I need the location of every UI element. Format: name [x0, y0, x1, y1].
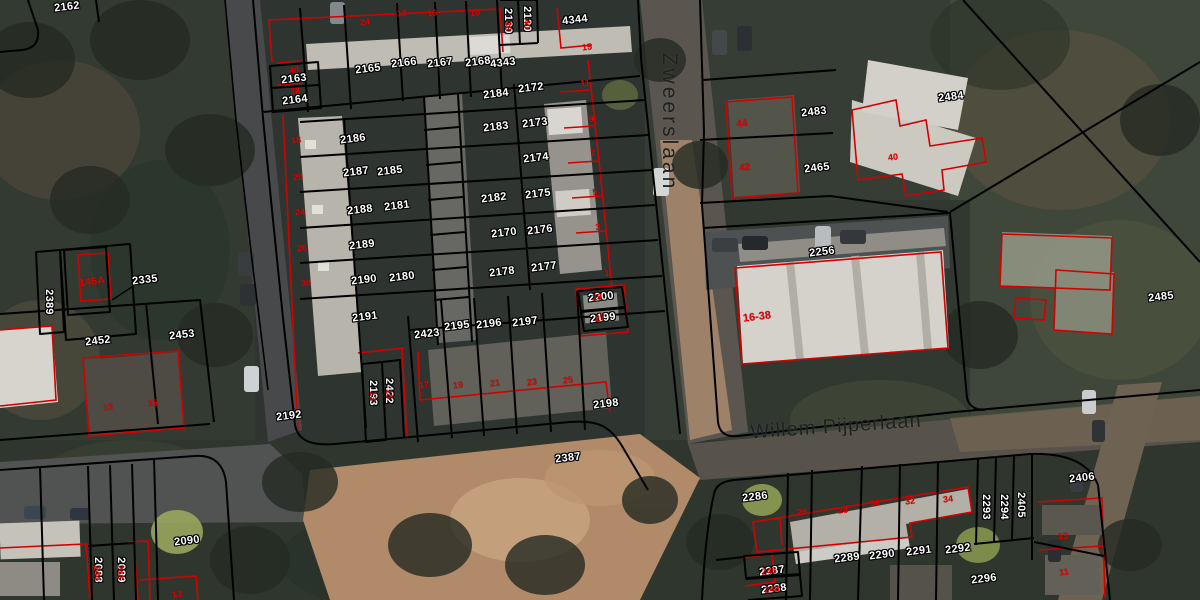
house-number-244: 244	[92, 565, 102, 580]
parcel-label-2406: 2406	[1069, 470, 1096, 485]
house-number-15: 15	[384, 389, 394, 399]
house-number-16: 16	[426, 7, 437, 18]
house-number-9: 9	[588, 114, 594, 125]
house-number-248: 248	[764, 583, 780, 595]
parcel-label-2172: 2172	[518, 80, 545, 95]
house-number-10: 10	[469, 7, 480, 18]
house-number-24: 24	[294, 206, 305, 217]
parcel-label-2177: 2177	[531, 259, 558, 274]
parcel-label-2256: 2256	[809, 244, 836, 259]
house-number-23: 23	[526, 376, 537, 387]
house-number-38: 38	[503, 21, 513, 31]
house-number-13: 13	[368, 391, 378, 401]
parcel-label-2192: 2192	[276, 408, 303, 423]
parcel-label-2452: 2452	[85, 333, 112, 348]
parcel-label-2178: 2178	[489, 264, 516, 279]
parcel-label-2180: 2180	[389, 269, 416, 284]
parcel-label-4343: 4343	[490, 55, 517, 70]
house-number-13: 13	[1057, 530, 1068, 541]
parcel-label-2196: 2196	[476, 316, 503, 331]
house-number-15: 15	[147, 397, 158, 408]
house-number-13: 13	[171, 588, 182, 599]
parcel-label-2181: 2181	[384, 198, 411, 213]
house-number-34: 34	[942, 493, 953, 504]
house-number-18: 18	[290, 134, 301, 145]
parcel-label-2485: 2485	[1148, 289, 1175, 304]
house-number-17: 17	[418, 379, 429, 390]
parcel-label-2186: 2186	[340, 131, 367, 146]
house-number-15: 15	[581, 41, 592, 52]
house-number-26: 26	[296, 242, 307, 253]
parcel-label-2389: 2389	[43, 289, 55, 315]
house-number-40: 40	[887, 151, 898, 162]
parcel-label-2162: 2162	[54, 0, 81, 15]
house-number-1: 1	[604, 268, 610, 279]
house-number-24: 24	[359, 16, 370, 27]
parcel-label-2198: 2198	[593, 396, 620, 411]
parcel-label-2197: 2197	[512, 314, 539, 329]
house-number-40: 40	[522, 19, 532, 29]
parcel-label-2176: 2176	[527, 222, 554, 237]
house-number-246: 246	[115, 564, 125, 579]
house-number-38: 38	[289, 85, 300, 96]
house-number-16-38: 16-38	[742, 309, 771, 324]
parcel-label-2291: 2291	[906, 543, 933, 558]
house-number-26: 26	[796, 506, 807, 517]
house-number-27: 27	[594, 312, 605, 323]
house-number-11: 11	[580, 77, 591, 88]
street-label-zweerslaan: Zweerslaan	[657, 53, 681, 192]
parcel-label-2453: 2453	[169, 327, 196, 342]
house-number-25: 25	[562, 374, 573, 385]
parcel-label-2191: 2191	[352, 309, 379, 324]
street-label-willem-pijperlaan: Willem Pijperlaan	[750, 410, 923, 445]
parcel-label-2170: 2170	[491, 225, 518, 240]
parcel-label-2174: 2174	[523, 150, 550, 165]
house-number-11: 11	[1059, 566, 1070, 577]
house-number-29: 29	[591, 291, 602, 302]
parcel-label-2165: 2165	[355, 61, 382, 76]
house-number-30: 30	[300, 277, 311, 288]
parcel-label-2292: 2292	[945, 541, 972, 556]
house-number-5: 5	[592, 187, 598, 198]
parcel-label-2289: 2289	[834, 550, 861, 565]
house-number-20: 20	[292, 171, 303, 182]
parcel-label-2405: 2405	[1015, 492, 1027, 518]
house-number-28: 28	[837, 504, 848, 515]
house-number-246: 246	[761, 565, 777, 577]
parcel-label-2290: 2290	[869, 547, 896, 562]
parcel-label-2167: 2167	[427, 55, 454, 70]
parcel-label-2483: 2483	[801, 104, 828, 119]
house-number-7: 7	[590, 148, 596, 159]
house-number-18: 18	[396, 7, 407, 18]
parcel-label-2335: 2335	[132, 272, 159, 287]
parcel-label-2173: 2173	[522, 115, 549, 130]
parcel-label-2293: 2293	[980, 494, 992, 520]
parcel-label-2184: 2184	[483, 86, 510, 101]
house-number-30: 30	[869, 497, 880, 508]
house-number-32: 32	[904, 495, 915, 506]
cadastral-map[interactable]: Zweerslaan Willem Pijperlaan 21622163216…	[0, 0, 1200, 600]
parcel-label-2387: 2387	[555, 450, 582, 465]
parcel-label-2185: 2185	[377, 163, 404, 178]
parcel-label-2423: 2423	[414, 326, 441, 341]
parcel-label-2195: 2195	[444, 318, 471, 333]
house-number-146A: 146A	[78, 274, 106, 289]
parcel-label-2090: 2090	[174, 533, 201, 548]
parcel-label-2183: 2183	[483, 119, 510, 134]
house-number-40: 40	[288, 64, 299, 75]
house-number-19: 19	[452, 379, 463, 390]
parcel-label-4344: 4344	[562, 12, 589, 27]
parcel-label-2168: 2168	[465, 54, 492, 69]
house-number-44: 44	[736, 118, 748, 130]
parcel-label-2166: 2166	[391, 55, 418, 70]
parcel-label-2188: 2188	[347, 202, 374, 217]
house-number-21: 21	[489, 377, 500, 388]
parcel-label-2465: 2465	[804, 160, 831, 175]
parcel-label-2189: 2189	[349, 237, 376, 252]
parcel-label-2296: 2296	[971, 571, 998, 586]
parcel-label-2286: 2286	[742, 489, 769, 504]
parcel-label-2294: 2294	[998, 494, 1010, 520]
parcel-label-2182: 2182	[481, 190, 508, 205]
parcel-label-2484: 2484	[938, 89, 965, 104]
parcel-label-2187: 2187	[343, 164, 370, 179]
house-number-42: 42	[739, 162, 751, 174]
parcel-label-2175: 2175	[525, 186, 552, 201]
parcel-label-2190: 2190	[351, 272, 378, 287]
house-number-13: 13	[102, 401, 113, 412]
house-number-3: 3	[595, 222, 601, 233]
map-labels-layer: Zweerslaan Willem Pijperlaan 21622163216…	[0, 0, 1200, 600]
